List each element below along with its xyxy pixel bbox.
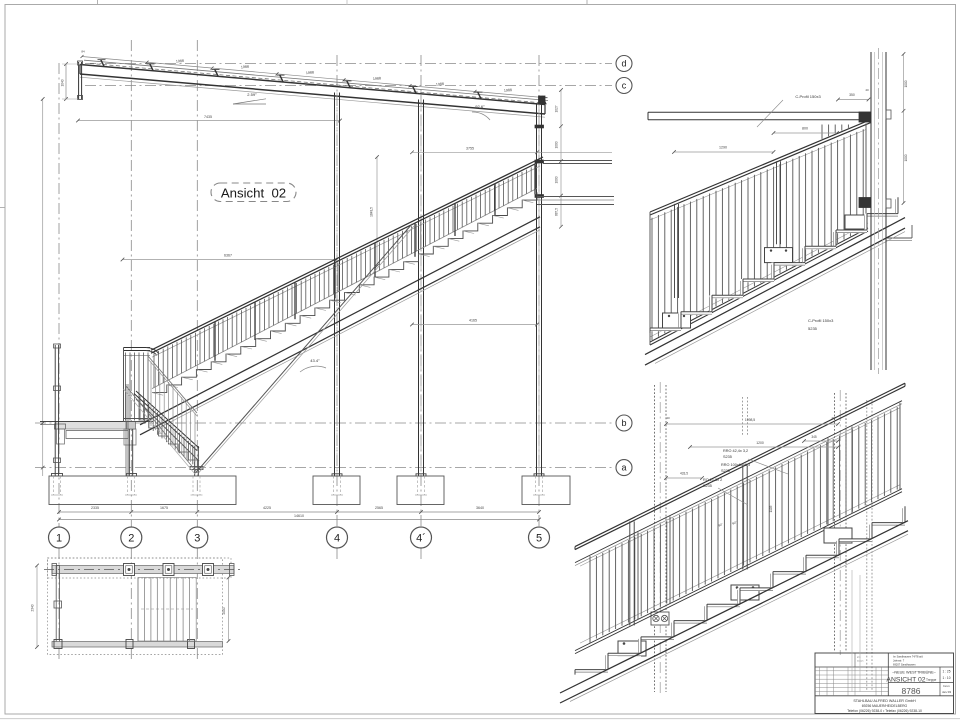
svg-text:800: 800 [802,127,808,131]
svg-text:1988: 1988 [436,82,444,87]
svg-text:b: b [621,418,626,428]
svg-text:40: 40 [865,88,869,92]
svg-text:a: a [621,463,626,473]
svg-text:ANSICHT 02: ANSICHT 02 [886,677,925,684]
svg-text:c: c [622,81,627,91]
svg-text:433,5: 433,5 [680,472,688,476]
svg-text:1998,5: 1998,5 [745,418,755,422]
svg-text:Ansicht 02: Ansicht 02 [221,185,286,200]
svg-text:RO 21,3x 2: RO 21,3x 2 [703,478,722,482]
svg-text:1675: 1675 [160,506,168,510]
svg-text:Jan-'03: Jan-'03 [942,690,952,694]
svg-text:92.6°: 92.6° [475,104,485,109]
svg-text:345: 345 [811,435,817,439]
svg-text:350: 350 [849,93,855,97]
svg-text:6367: 6367 [224,254,232,258]
svg-text:1988: 1988 [504,88,512,93]
svg-text:2565: 2565 [375,506,383,510]
svg-text:1000: 1000 [555,141,559,148]
svg-text:1988: 1988 [373,76,381,81]
svg-text:84: 84 [81,50,85,54]
svg-text:1988: 1988 [176,59,184,64]
svg-text:3: 3 [194,533,200,545]
svg-text:4225: 4225 [263,506,271,510]
svg-text:1105: 1105 [769,505,773,512]
svg-text:1027: 1027 [555,105,559,112]
svg-text:Treppe: Treppe [926,678,936,682]
svg-text:gez.: gez. [857,657,862,659]
svg-text:1000: 1000 [555,176,559,183]
svg-text:40: 40 [666,416,670,420]
svg-text:8786: 8786 [902,686,921,696]
svg-text:S235: S235 [703,484,712,488]
svg-text:C-Profil 150x3: C-Profil 150x3 [808,318,834,323]
svg-text:1290: 1290 [719,146,727,150]
svg-text:Datum: Datum [943,685,950,688]
svg-text:887,5: 887,5 [555,208,559,216]
svg-text:43.4°: 43.4° [310,358,320,363]
svg-text:1: 1 [56,533,62,545]
svg-text:4165: 4165 [469,319,477,323]
svg-text:Telefon (06226) 9238-0 • Telef: Telefon (06226) 9238-0 • Telefax (06226)… [847,709,922,713]
svg-text:S235: S235 [721,469,730,473]
svg-text:C-Profil 150x3: C-Profil 150x3 [795,94,821,99]
svg-text:14610: 14610 [294,514,304,518]
svg-text:1988: 1988 [241,65,249,70]
svg-text:1 : 10: 1 : 10 [943,676,951,680]
svg-text:3640: 3640 [476,506,484,510]
svg-text:40: 40 [831,416,835,420]
svg-text:d: d [621,59,626,69]
svg-text:4: 4 [334,533,340,545]
svg-text:1988: 1988 [306,70,314,75]
svg-text:Im Sandhausen 74/78 a/d: Im Sandhausen 74/78 a/d [893,655,923,659]
svg-text:1200: 1200 [756,441,764,445]
svg-text:STAHLBAU ALFRED WALLER GmbH: STAHLBAU ALFRED WALLER GmbH [853,699,916,703]
svg-text:Datum: Datum [857,660,864,663]
svg-text:2000: 2000 [222,607,226,614]
svg-text:RRO 100x60x6,3: RRO 100x60x6,3 [721,463,750,467]
svg-text:3755: 3755 [466,147,474,151]
svg-text:1000: 1000 [904,154,908,161]
svg-text:2340: 2340 [31,604,35,611]
svg-text:5: 5 [536,533,542,545]
svg-text:7435: 7435 [204,115,212,119]
svg-text:1 : 25: 1 : 25 [943,670,951,674]
svg-text:2: 2 [128,533,134,545]
svg-text:5235: 5235 [808,326,818,331]
svg-text:69256 MAUER/HEIDELBERG: 69256 MAUER/HEIDELBERG [862,704,908,708]
svg-text:RRO 42,4x 3,2: RRO 42,4x 3,2 [723,449,748,453]
svg-text:2335: 2335 [91,506,99,510]
svg-text:Jahnstr. 7: Jahnstr. 7 [893,659,905,663]
svg-text:4´: 4´ [416,533,426,545]
svg-text:1040: 1040 [61,79,65,86]
svg-text:1000: 1000 [904,80,908,87]
svg-text:–NEUE WESTTRIBÜNE–: –NEUE WESTTRIBÜNE– [892,671,936,675]
svg-text:69207 Sandhausen: 69207 Sandhausen [893,663,916,667]
svg-text:2.59°: 2.59° [247,92,257,97]
svg-text:S235: S235 [723,455,732,459]
svg-text:1848,5: 1848,5 [370,207,374,217]
